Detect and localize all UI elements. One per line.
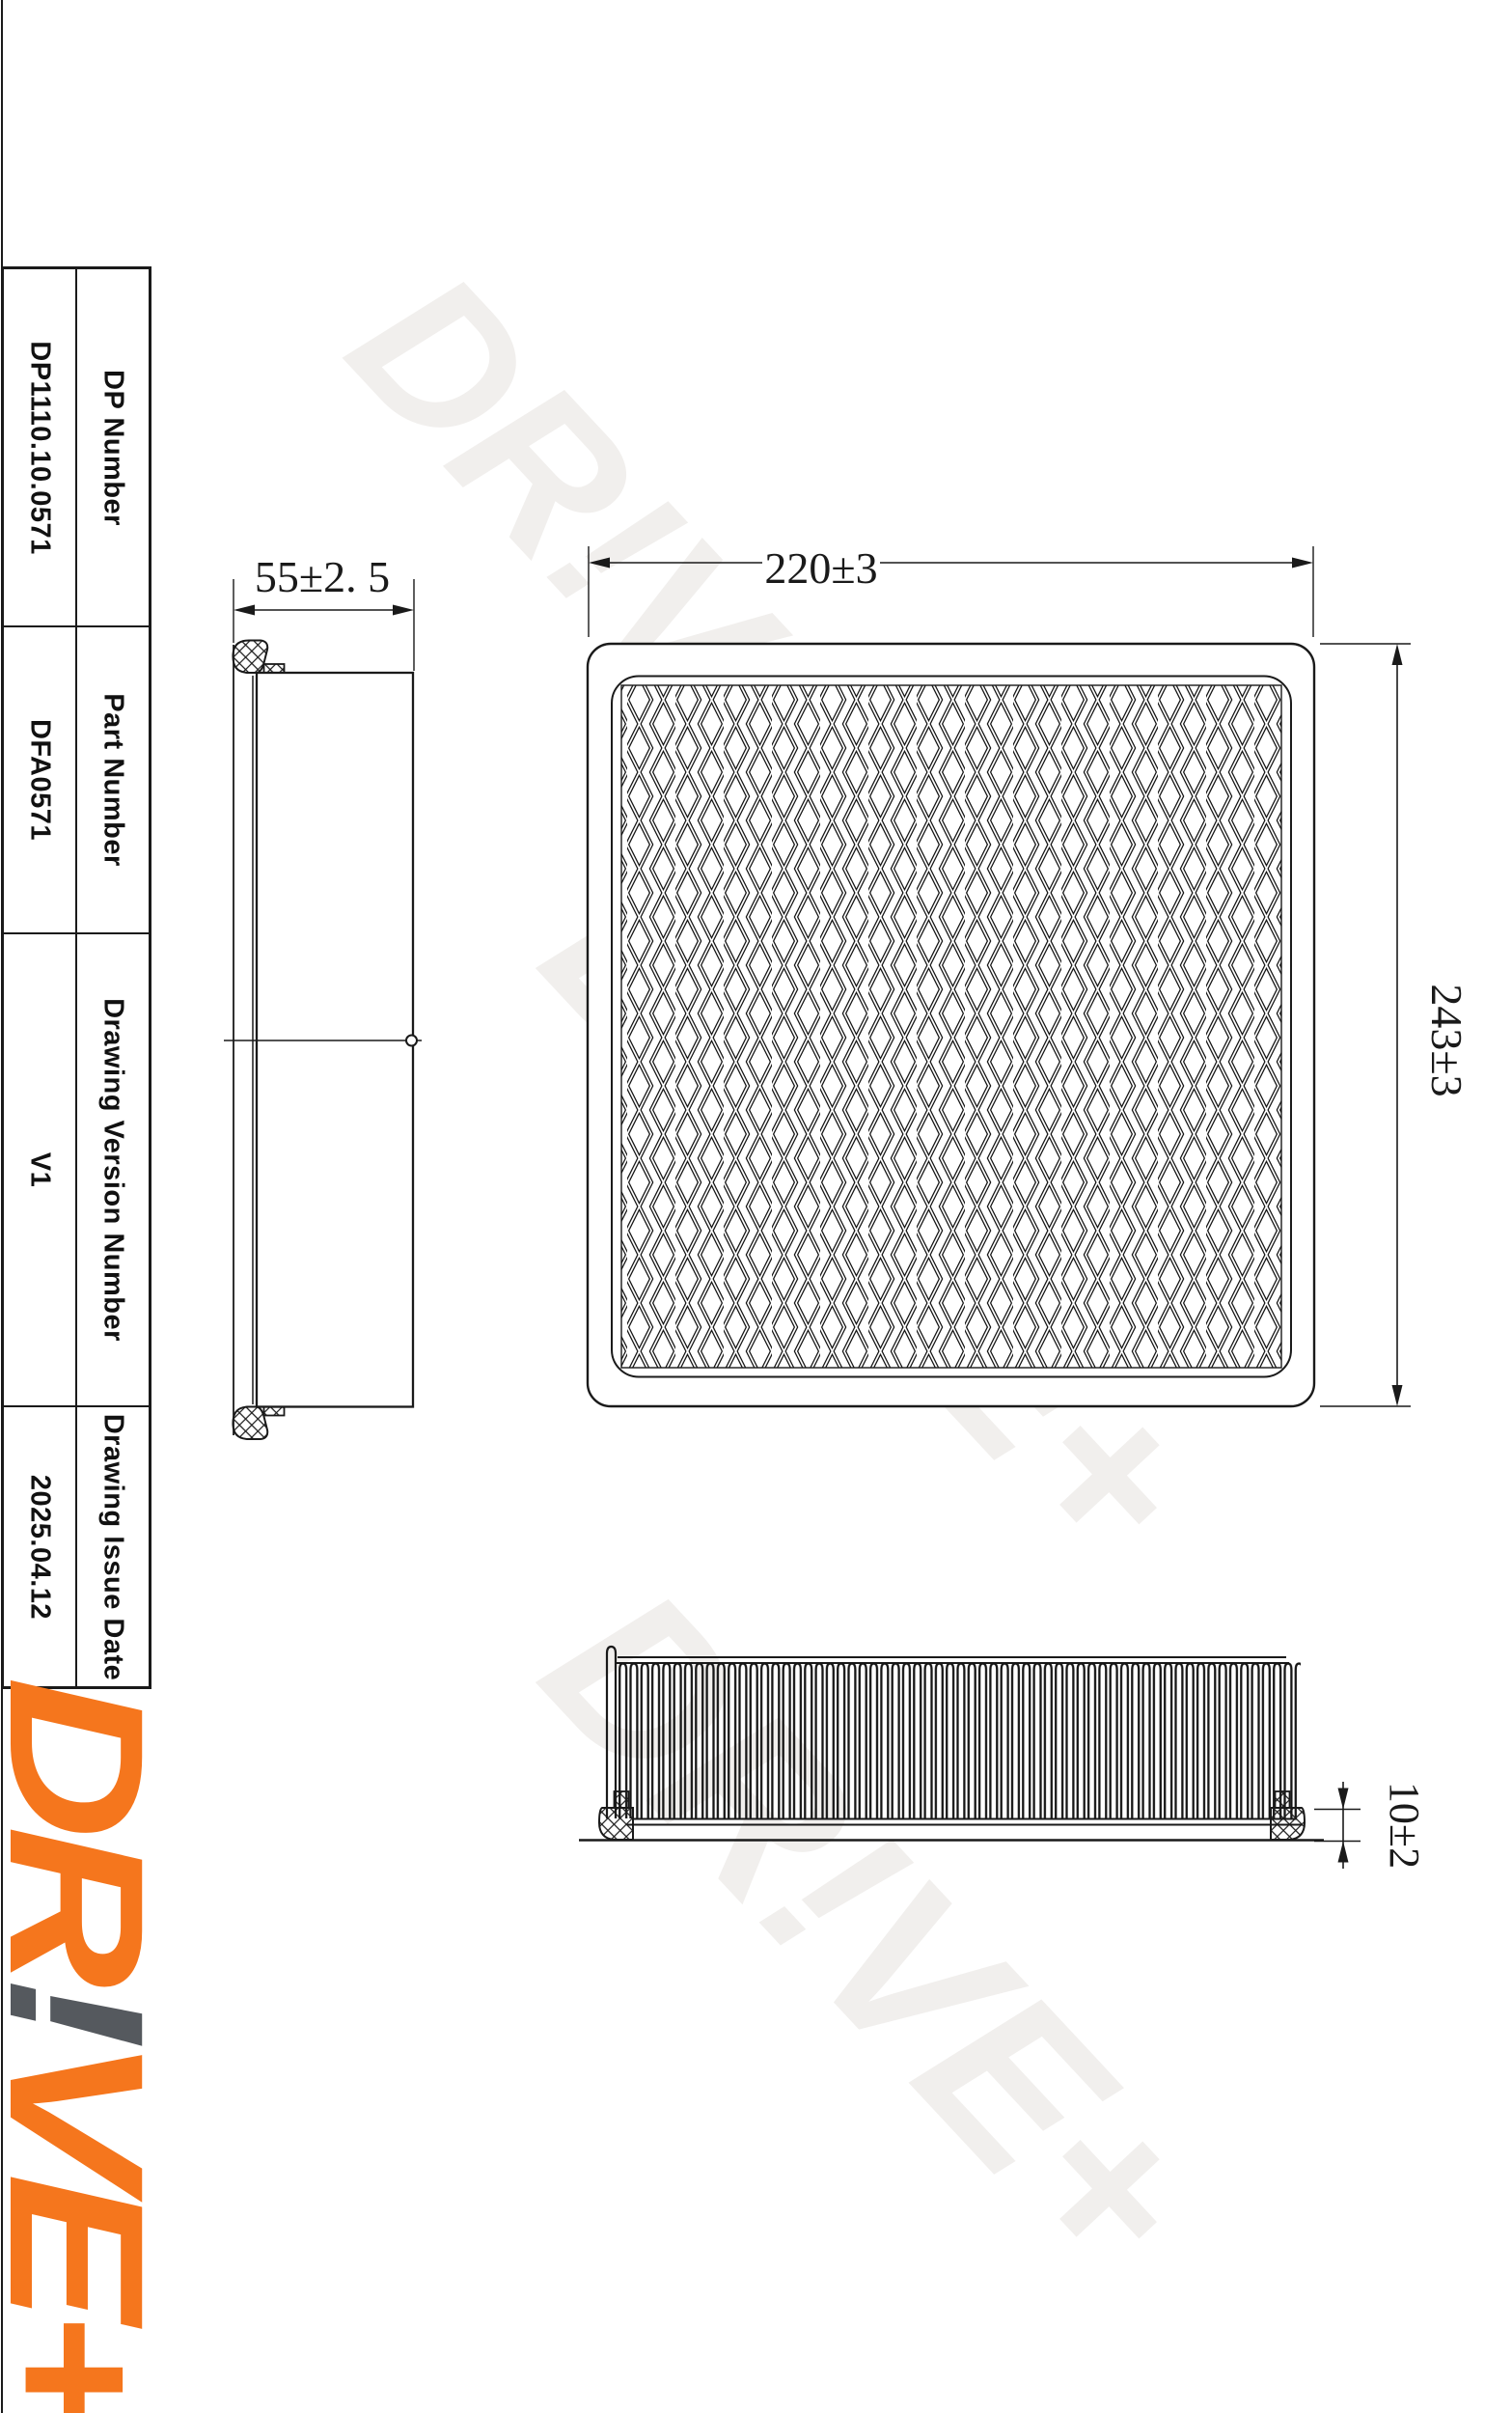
gasket-top-section [233, 641, 267, 674]
gasket-left [599, 1808, 633, 1840]
dim-plan-width: 220±3 [764, 543, 877, 593]
dim-plan-height: 243±3 [1422, 984, 1471, 1096]
watermark-text: DR!VE+ [497, 1541, 1244, 2317]
plan-view: 220±3 243±3 [588, 543, 1471, 1406]
side-view: 55±2. 5 [224, 552, 422, 1439]
dim-tray-height: 10±2 [1381, 1782, 1428, 1869]
drawing-page: DP1110.10.0571 DP Number DFA0571 Part Nu… [0, 0, 1512, 2413]
pleat-pack [618, 1661, 1301, 1818]
dim-side-width: 55±2. 5 [255, 552, 390, 601]
gasket-bottom-section [233, 1407, 267, 1440]
gasket-right [1271, 1808, 1305, 1840]
filter-mesh [621, 685, 1281, 1368]
technical-drawing: DR!VE+ DR!VE+ DR!VE+ 55±2. 5 [0, 0, 1512, 2413]
